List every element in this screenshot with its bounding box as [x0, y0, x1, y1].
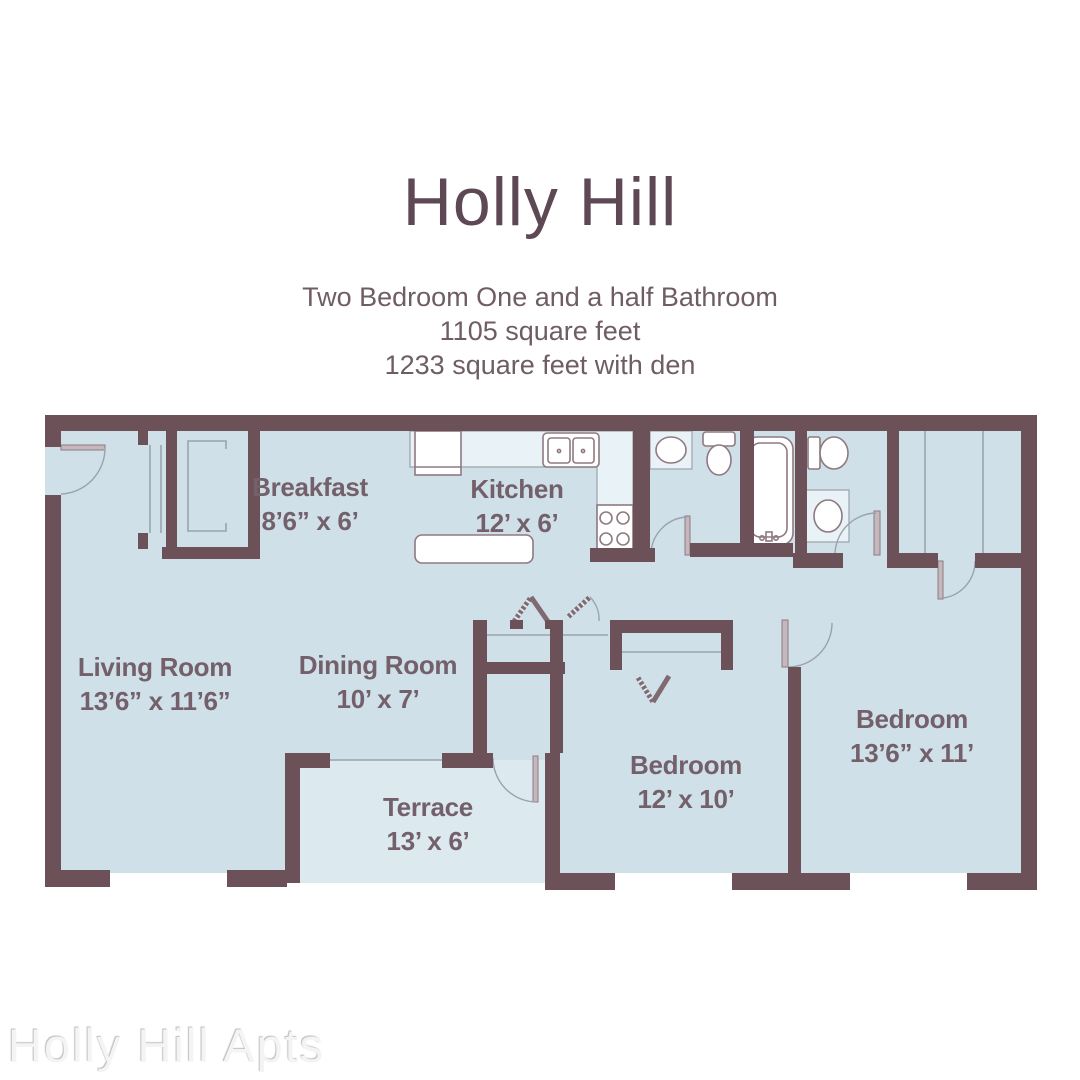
room-name: Living Room — [78, 650, 232, 684]
wall-wardrobe-bottom-left — [887, 553, 938, 568]
label-dining-room: Dining Room 10’ x 7’ — [299, 648, 457, 716]
wall-bath-bottom — [690, 543, 793, 557]
subtitle-sqft-den: 1233 square feet with den — [0, 348, 1080, 382]
living-room-window — [110, 873, 227, 884]
half-bath-toilet-bowl — [707, 445, 731, 475]
terrace-vestibule-door-leaf — [533, 756, 538, 802]
wall-entry-stub-bottom — [138, 533, 148, 549]
room-dims: 13’6” x 11’6” — [78, 684, 232, 718]
entry-opening-floor — [45, 445, 61, 495]
label-kitchen: Kitchen 12’ x 6’ — [470, 472, 563, 540]
label-living-room: Living Room 13’6” x 11’6” — [78, 650, 232, 718]
wall-below-range — [590, 548, 655, 562]
floorplan-page: Holly Hill Two Bedroom One and a half Ba… — [0, 0, 1080, 1080]
half-bath-toilet-tank — [703, 432, 735, 446]
wall-terrace-left — [285, 753, 300, 883]
range-icon — [597, 505, 633, 553]
wall-wardrobe-left — [887, 431, 899, 555]
wall-entry-closet-mid — [166, 431, 177, 549]
wall-bedroom1-closet-top — [610, 620, 733, 633]
room-name: Terrace — [383, 790, 473, 824]
label-breakfast: Breakfast 8’6” x 6’ — [252, 470, 368, 538]
wall-tub-right — [795, 431, 807, 566]
wall-dining-hall — [473, 620, 487, 753]
wall-half-bath-right — [740, 431, 754, 548]
bath-toilet-bowl — [820, 437, 848, 469]
wall-left-upper — [45, 431, 61, 447]
label-terrace: Terrace 13’ x 6’ — [383, 790, 473, 858]
wall-bedrooms-bottom-mid — [732, 873, 850, 890]
wall-living-bottom-left — [45, 870, 110, 887]
wall-top — [45, 415, 1037, 431]
refrigerator-icon — [415, 431, 461, 475]
floorplan-drawing: Breakfast 8’6” x 6’ Kitchen 12’ x 6’ Liv… — [45, 415, 1037, 890]
label-bedroom-1: Bedroom 12’ x 10’ — [630, 748, 742, 816]
bedroom2-window — [850, 876, 967, 887]
plan-subtitle: Two Bedroom One and a half Bathroom 1105… — [0, 280, 1080, 382]
room-name: Dining Room — [299, 648, 457, 682]
wall-bedroom-divider — [788, 667, 801, 873]
wall-bedroom1-bottom-left — [545, 873, 615, 890]
entry-door-leaf — [61, 445, 105, 450]
wall-terrace-post-1 — [285, 753, 330, 768]
wall-wardrobe-bottom-right — [975, 553, 1021, 568]
room-dims: 12’ x 6’ — [470, 506, 563, 540]
bedroom1-window — [615, 876, 732, 887]
room-name: Bedroom — [630, 748, 742, 782]
room-dims: 8’6” x 6’ — [252, 504, 368, 538]
page-title: Holly Hill — [0, 163, 1080, 241]
wall-kitchen-right — [633, 431, 650, 548]
wall-terrace-post-2 — [442, 753, 493, 768]
wall-vestibule-right — [550, 620, 563, 753]
room-name: Bedroom — [850, 702, 974, 736]
wall-closet-cap-1 — [510, 620, 523, 629]
wall-right — [1021, 415, 1037, 890]
wall-bedroom1-left — [545, 753, 560, 873]
room-dims: 10’ x 7’ — [299, 682, 457, 716]
wall-left-lower — [45, 495, 61, 870]
wall-living-bottom-right — [227, 870, 287, 887]
wall-entry-stub-top — [138, 431, 148, 445]
room-dims: 13’ x 6’ — [383, 824, 473, 858]
wall-entry-closet-bottom — [162, 547, 260, 559]
label-bedroom-2: Bedroom 13’6” x 11’ — [850, 702, 974, 770]
half-bath-door-leaf — [685, 516, 690, 555]
bath-sink-icon — [814, 500, 842, 532]
room-name: Kitchen — [470, 472, 563, 506]
wall-bedroom1-closet-capR — [721, 620, 733, 670]
wall-bedroom2-bottom-right — [967, 873, 1021, 890]
room-name: Breakfast — [252, 470, 368, 504]
subtitle-sqft: 1105 square feet — [0, 314, 1080, 348]
bedroom2-door-leaf — [782, 620, 788, 667]
wall-bedroom1-closet-capL — [610, 620, 622, 670]
bath-toilet-tank — [808, 437, 820, 469]
room-dims: 13’6” x 11’ — [850, 736, 974, 770]
subtitle-bed-bath: Two Bedroom One and a half Bathroom — [0, 280, 1080, 314]
room-dims: 12’ x 10’ — [630, 782, 742, 816]
watermark-text: Holly Hill Apts — [8, 1018, 325, 1073]
bath-door-leaf — [874, 511, 880, 555]
half-bath-sink-icon — [656, 437, 686, 463]
wall-dressing-bottom — [793, 553, 843, 568]
wardrobe-door-leaf — [938, 561, 943, 599]
